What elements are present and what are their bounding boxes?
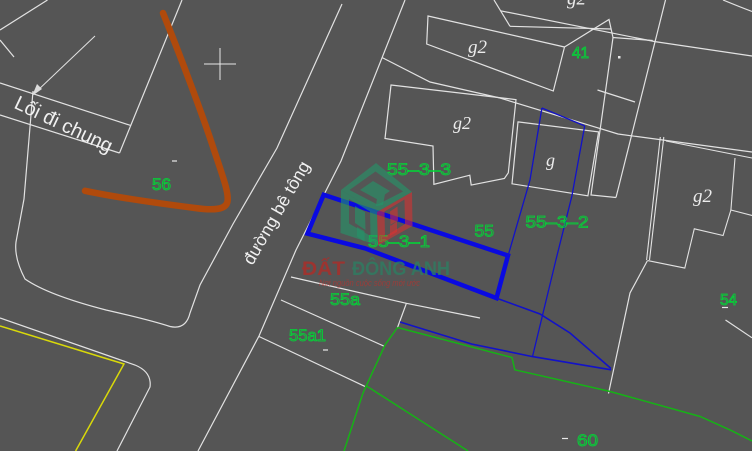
svg-text:g2: g2 (468, 37, 488, 58)
svg-text:41: 41 (572, 45, 589, 62)
svg-text:ĐÔNG ANH: ĐÔNG ANH (352, 256, 450, 280)
svg-text:60: 60 (577, 431, 598, 450)
svg-text:54: 54 (720, 292, 737, 309)
svg-text:55a1: 55a1 (289, 326, 326, 345)
svg-text:55: 55 (475, 222, 495, 241)
svg-text:55–3–2: 55–3–2 (526, 213, 589, 232)
svg-text:g2: g2 (567, 0, 587, 10)
svg-text:55–3–3: 55–3–3 (387, 160, 451, 179)
svg-text:ĐẤT: ĐẤT (302, 257, 345, 280)
svg-text:Nơi nguồn cuộc sống mới ước: Nơi nguồn cuộc sống mới ước (319, 278, 420, 289)
svg-text:55a: 55a (330, 290, 361, 309)
svg-text:g2: g2 (453, 113, 471, 133)
svg-text:56: 56 (152, 175, 171, 194)
svg-text:g: g (546, 150, 555, 170)
svg-text:g2: g2 (693, 186, 713, 207)
